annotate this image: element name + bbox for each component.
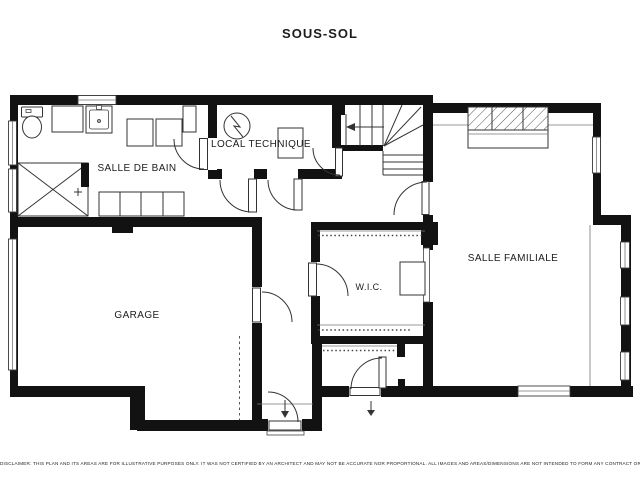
shower-icon [18, 163, 89, 216]
door-hall-right [268, 179, 302, 210]
water-heater-icon [224, 113, 250, 139]
entry-arrow [281, 400, 289, 418]
window [621, 297, 630, 325]
window [621, 242, 630, 268]
exit-arrow [367, 401, 375, 416]
room-wic: W.I.C. [317, 231, 425, 351]
room-label-wic: W.I.C. [356, 282, 383, 292]
staircase [346, 105, 423, 175]
room-label-garage: GARAGE [114, 310, 159, 321]
door-wic [309, 263, 349, 296]
window [518, 386, 570, 396]
bathroom-cabinet [52, 106, 83, 132]
floorplan-svg: SALLE DE BAIN LOCAL TECHNIQUE [0, 0, 640, 480]
bathroom-cabinet [183, 106, 196, 132]
sink-icon [86, 106, 112, 134]
room-label-local-technique: LOCAL TECHNIQUE [211, 139, 311, 150]
wic-dresser [400, 262, 425, 295]
door-hall-left [220, 179, 257, 212]
stairs-direction-arrow [346, 123, 384, 131]
bathroom-bench [99, 192, 184, 216]
room-label-salle-familiale: SALLE FAMILIALE [468, 253, 559, 264]
room-local-technique: LOCAL TECHNIQUE [211, 113, 311, 158]
window [593, 137, 601, 173]
room-label-salle-de-bain: SALLE DE BAIN [97, 163, 176, 174]
built-in-cabinet [468, 107, 548, 148]
disclaimer-text: DISCLAIMER: THIS PLAN AND ITS AREAS ARE … [0, 461, 640, 466]
floorplan-page: SOUS-SOL [0, 0, 640, 480]
garage-window [9, 239, 17, 370]
toilet-icon [22, 107, 43, 138]
window [9, 121, 17, 165]
bathroom-fixture [156, 119, 182, 146]
door-salle-familiale [394, 182, 429, 216]
window [621, 352, 630, 380]
room-salle-de-bain: SALLE DE BAIN [18, 106, 196, 217]
door-garage [253, 288, 293, 322]
room-salle-familiale: SALLE FAMILIALE [433, 107, 593, 386]
window [9, 169, 17, 212]
interior-walls [10, 103, 438, 431]
window [78, 96, 116, 105]
bathroom-fixture [127, 119, 153, 146]
